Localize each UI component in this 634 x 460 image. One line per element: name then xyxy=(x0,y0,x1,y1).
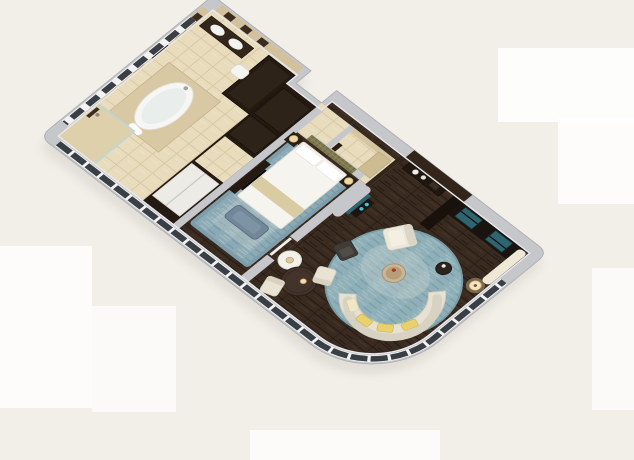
background-patch xyxy=(92,306,176,412)
background-patch xyxy=(558,118,634,204)
floor-plan-rendering xyxy=(0,0,634,460)
background-patch xyxy=(250,430,440,460)
background-patch xyxy=(0,246,92,408)
yellow-pillow xyxy=(376,323,393,332)
background-patch xyxy=(592,268,634,410)
floor-plan-stage xyxy=(0,0,634,460)
background-patch xyxy=(498,48,634,122)
